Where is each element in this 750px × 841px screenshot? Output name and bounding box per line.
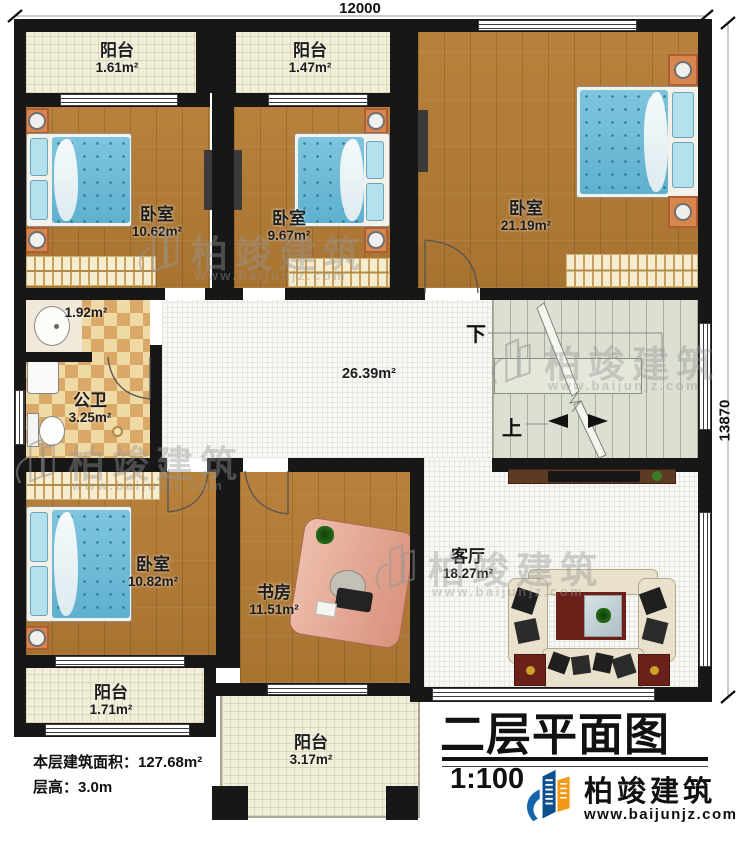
pillow [30,512,48,562]
wall-segment [480,288,712,300]
pillow [30,566,48,616]
wall-segment [14,19,26,737]
window [478,20,637,31]
stair-landing [494,358,642,394]
wall-segment [288,458,423,472]
pillow [366,141,384,179]
room-label-balcony-top-mid: 阳台 1.47m² [289,42,332,76]
wall-segment [212,19,234,288]
toilet-tank-icon [27,413,39,447]
stair-down-label: 下 [466,318,486,347]
cushion [571,655,591,675]
plant-icon [652,471,662,481]
wall-segment [150,345,162,458]
floor-height-note: 层高：3.0m [33,775,202,800]
toilet-icon [39,416,65,446]
window [15,390,25,445]
room-label-bathroom: 公卫 3.25m² [69,392,112,426]
room-label-bath-vanity: 1.92m² [65,306,108,321]
wardrobe [566,254,698,287]
cushion [592,652,613,673]
brand-logo-icon [522,766,578,828]
nightstand [25,108,49,134]
blanket [644,92,668,192]
balcony-post [212,786,248,820]
stair-up-label: 上 [502,412,522,441]
tv-icon [548,471,640,482]
wall-segment [205,288,243,300]
window [268,94,368,106]
wall-segment [14,458,167,472]
washing-machine-icon [27,360,59,394]
nightstand [668,54,698,86]
room-label-bedroom-top-mid: 卧室 9.67m² [268,210,311,244]
keyboard-icon [315,601,337,618]
floor-area-note: 本层建筑面积：127.68m² [33,750,202,775]
pillow [672,142,694,188]
window [267,684,368,695]
footer-notes: 本层建筑面积：127.68m² 层高：3.0m [33,750,202,800]
drawing-scale: 1:100 [450,763,524,795]
dimension-top: 12000 [330,0,390,17]
nightstand [668,196,698,228]
pillow [30,138,48,176]
brand-url: www.baijunjz.com [584,806,737,823]
room-label-living-room: 客厅 18.27m² [443,548,493,582]
room-label-bedroom-bottom-left: 卧室 10.82m² [128,556,178,590]
wall-segment [285,288,418,300]
room-label-balcony-bottom-left: 阳台 1.71m² [90,684,133,718]
nightstand [364,108,388,134]
wall-segment [390,19,418,300]
room-label-bedroom-top-left: 卧室 10.62m² [132,206,182,240]
wardrobe [288,258,390,287]
nightstand [364,227,388,253]
cushion [514,618,540,644]
window [55,656,185,667]
brand-logo-block: 柏竣建筑 www.baijunjz.com [522,766,744,832]
pillow [30,180,48,220]
brand-name: 柏竣建筑 [584,768,716,810]
pillow [672,92,694,138]
blanket [340,139,364,221]
blanket [54,512,78,616]
room-label-balcony-bottom-mid: 阳台 3.17m² [290,734,333,768]
wall-segment [410,458,424,690]
window [699,512,711,667]
sink-drain-icon [54,324,59,329]
door-leaf [234,150,242,210]
plant-icon [596,608,611,623]
title-underline [442,757,708,761]
floor-plan-canvas: 12000 13870 阳台 1.61m² 阳台 1.47m² 卧室 10.62… [0,0,750,841]
wall-segment [26,352,92,362]
drawing-title: 二层平面图 [440,709,670,760]
wall-segment [14,288,165,300]
table-medallion-icon [526,666,535,675]
plant-icon [316,526,334,544]
floor-drain-icon [112,426,123,437]
wardrobe [26,470,160,500]
table-medallion-icon [650,666,659,675]
wall-segment [216,472,240,668]
door-leaf [204,150,212,210]
window [699,323,711,430]
dimension-right: 13870 [717,386,734,456]
room-label-hallway: 26.39m² [342,367,396,383]
nightstand [25,227,49,253]
room-label-bedroom-top-right: 卧室 21.19m² [501,200,551,234]
window [45,724,190,736]
wardrobe [26,256,156,286]
wall-segment [207,458,243,472]
room-label-study: 书房 11.51m² [249,584,299,618]
pillow [366,183,384,221]
room-label-balcony-top-left: 阳台 1.61m² [96,42,139,76]
blanket [54,139,78,221]
door-leaf [418,110,428,172]
nightstand [25,626,49,650]
window [60,94,178,106]
wall-segment [418,288,425,300]
balcony-post [386,786,418,820]
